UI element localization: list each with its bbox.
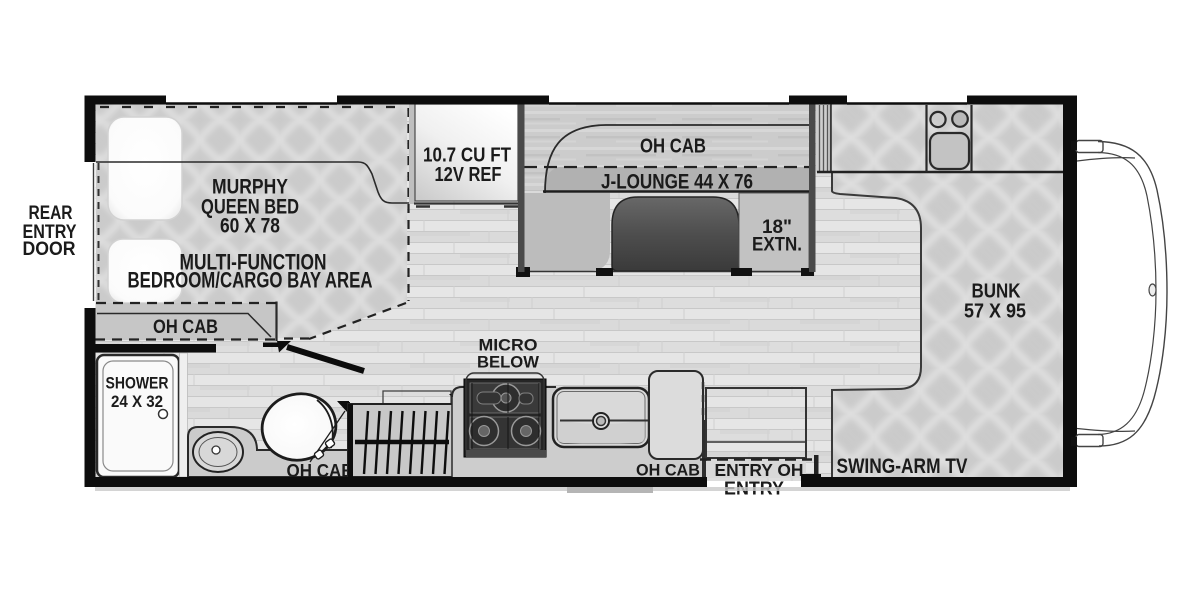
svg-text:SWING-ARM TV: SWING-ARM TV (837, 455, 968, 478)
svg-text:BEDROOM/CARGO BAY AREA: BEDROOM/CARGO BAY AREA (128, 268, 373, 293)
svg-text:OH CAB: OH CAB (636, 461, 700, 480)
svg-text:OH CAB: OH CAB (153, 317, 218, 338)
svg-text:J-LOUNGE 44 X 76: J-LOUNGE 44 X 76 (601, 171, 753, 194)
svg-text:BUNK: BUNK (972, 281, 1021, 303)
svg-text:DOOR: DOOR (23, 239, 76, 260)
svg-text:EXTN.: EXTN. (752, 235, 802, 256)
svg-text:OH CAB: OH CAB (640, 136, 706, 158)
svg-text:SHOWER: SHOWER (106, 374, 169, 393)
svg-text:24 X 32: 24 X 32 (111, 392, 163, 411)
svg-text:57 X 95: 57 X 95 (964, 301, 1026, 323)
svg-text:12V REF: 12V REF (435, 164, 502, 186)
svg-text:BELOW: BELOW (477, 353, 540, 372)
svg-text:REAR: REAR (29, 203, 73, 224)
svg-text:60 X 78: 60 X 78 (220, 215, 280, 238)
